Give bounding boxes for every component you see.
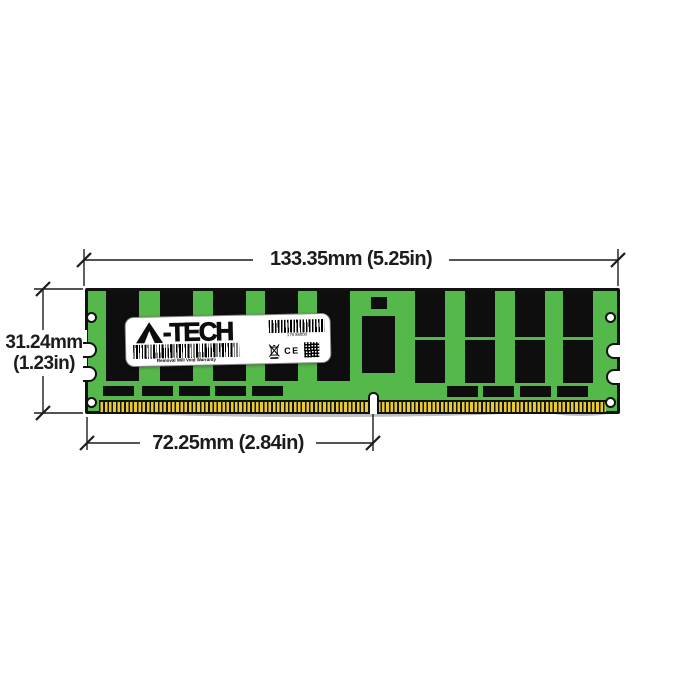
memory-chip	[465, 291, 495, 337]
qr-code-icon	[304, 342, 319, 357]
gold-pins	[99, 400, 606, 412]
a-tech-triangle-icon	[136, 322, 163, 344]
height-dimension-mm: 31.24mm	[1, 332, 87, 353]
edge-notch-right	[606, 343, 620, 359]
brand-logo: -TECH	[136, 319, 233, 345]
smd-component	[215, 386, 246, 396]
memory-chip	[515, 291, 545, 337]
mounting-hole	[605, 397, 616, 408]
ce-mark: CE	[284, 346, 300, 356]
smd-component	[142, 386, 173, 396]
mounting-hole	[86, 397, 97, 408]
smd-component	[103, 386, 134, 396]
spd-chip	[371, 297, 387, 309]
serial-number: 179 88000	[273, 332, 321, 338]
product-label: -TECH 179 88000 Removal Will Void Warran…	[124, 313, 331, 367]
brand-logo-text: -TECH	[163, 320, 233, 342]
smd-component	[447, 386, 478, 397]
warranty-text: Removal Will Void Warranty	[139, 357, 234, 364]
mounting-hole	[86, 312, 97, 323]
register-chip	[362, 316, 395, 373]
smd-component	[483, 386, 514, 397]
smd-component	[557, 386, 588, 397]
memory-chip	[415, 291, 445, 337]
serial-barcode-icon	[269, 319, 325, 333]
smd-component	[179, 386, 210, 396]
height-dimension-label: 31.24mm (1.23in)	[1, 330, 87, 376]
smd-component	[520, 386, 551, 397]
contact-span-dimension-label: 72.25mm (2.84in)	[140, 431, 316, 455]
memory-chip	[415, 340, 445, 383]
width-dimension-label: 133.35mm (5.25in)	[253, 247, 449, 272]
edge-notch-right	[606, 369, 620, 385]
memory-chip	[515, 340, 545, 383]
product-diagram: 133.35mm (5.25in) 31.24mm (1.23in) 72.25…	[0, 0, 700, 700]
memory-chip	[563, 291, 593, 337]
memory-chip	[465, 340, 495, 383]
height-dimension-in: (1.23in)	[1, 353, 87, 374]
weee-recycle-bin-icon	[268, 343, 280, 359]
memory-chip	[563, 340, 593, 383]
smd-component	[252, 386, 283, 396]
mounting-hole	[605, 312, 616, 323]
key-notch	[368, 392, 379, 414]
